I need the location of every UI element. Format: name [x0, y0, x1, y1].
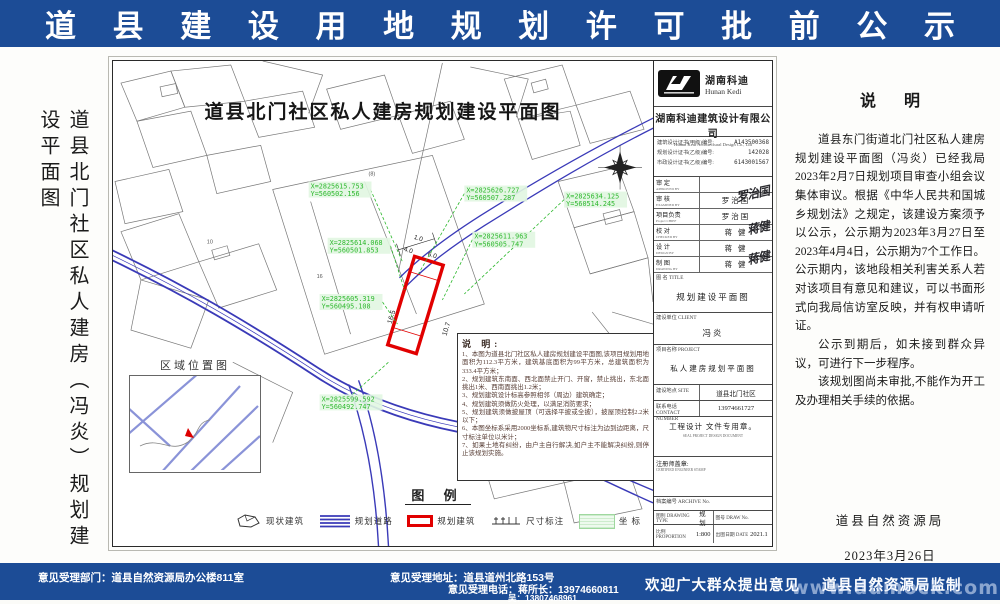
legend-item-planned-road: 规划道路 [319, 514, 393, 528]
svg-text:Y=560502.156: Y=560502.156 [311, 190, 360, 198]
scale-date-row: 比例 PROPORTION1:800 出图日期 DATE2021.1 [654, 525, 772, 543]
company-name-cell: 湖南科迪建筑设计有限公司 Hunan Kedi Architectural De… [654, 107, 772, 137]
statement-panel: 说 明 道县东门街道北门社区私人建房规划建设平面图（冯炎）已经我局2023年2月… [795, 87, 985, 564]
plan-note: 4、规划建筑须做防火处理，以满足消防要求； [462, 401, 649, 409]
contact-phone-cell: 联系电话 CONTACT NUMBER 13974661727 [654, 401, 772, 417]
svg-text:10.7: 10.7 [442, 321, 453, 336]
planned-building-plot [388, 256, 443, 353]
footer-banner: 意见受理部门：道县自然资源局办公楼811室 意见受理地址：道县道州北路153号 … [0, 563, 1000, 600]
legend-title: 图 例 [231, 485, 645, 504]
north-compass-icon [598, 145, 642, 189]
statement-paragraph: 公示到期后，如未接到群众异议，可进行下一步程序。 [795, 336, 985, 373]
statement-heading: 说 明 [795, 87, 985, 111]
plan-note: 2、规划建筑东南面、西北面禁止开门、开窗，禁止挑出，东北面挑出1米、西南面挑出1… [462, 376, 649, 393]
signing-date: 2023年3月26日 [795, 545, 985, 564]
svg-text:4.0: 4.0 [403, 246, 414, 255]
signing-organization: 道县自然资源局 [795, 510, 985, 529]
road-lines [113, 115, 653, 546]
plan-note: 1、本图为道县北门社区私人建房规划建设平面图,该项目规划用地面积为112.3平方… [462, 351, 649, 376]
legend-item-coordinate: 坐 标 [579, 514, 641, 529]
plan-notes-title: 说 明: [462, 337, 649, 350]
brand-name-cn: 湖南科迪 [705, 72, 749, 87]
svg-text:(8): (8) [369, 171, 376, 177]
inset-map-svg [130, 376, 260, 470]
certificate-numbers: 建筑设计证书(甲级)编号:A143500368 规划设计证书(乙级)编号:142… [654, 137, 772, 177]
svg-text:Y=560501.853: Y=560501.853 [330, 246, 379, 254]
inset-site-marker [185, 428, 194, 438]
kedi-logo-icon [658, 70, 700, 97]
footer-welcome: 欢迎广大群众提出意见 [645, 574, 800, 595]
plan-note: 6、本图坐标系采用2000坐标系,建筑物尺寸标注为边到边距离，尺寸标注单位以米计… [462, 425, 649, 442]
drawing-type-row: 图别 DRAWING TYPE规划 图号 DRAW No. [654, 511, 772, 525]
legend: 图 例 现状建筑 规划道路 [231, 485, 645, 541]
header-banner: 道 县 建 设 用 地 规 划 许 可 批 前 公 示 [0, 0, 1000, 47]
plan-note: 5、规划建筑须做披屋顶（可选择平披或全披），披屋顶控制2.2米以下； [462, 409, 649, 426]
svg-text:Y=560514.245: Y=560514.245 [566, 200, 615, 208]
drawing-sheet: 16.5 10.7 4.0 6.0 1.0 (8) 10 16 44 [112, 60, 773, 547]
company-logo-row: 湖南科迪 Hunan Kedi [654, 61, 772, 107]
notice-body: 道县北门社区私人建房（冯炎）规划建设平面图 [0, 47, 1000, 563]
title-block: 湖南科迪 Hunan Kedi 湖南科迪建筑设计有限公司 Hunan Kedi … [654, 61, 772, 546]
planned-building-swatch-icon [407, 515, 433, 527]
legend-item-dimension: 尺寸标注 [490, 514, 564, 528]
plan-notes-box: 说 明: 1、本图为道县北门社区私人建房规划建设平面图,该项目规划用地面积为11… [457, 333, 654, 481]
dimension-swatch-icon [490, 514, 522, 528]
plan-note: 7、如果土地有纠纷，由户主自行解决,如户主不能解决纠纷,则停止该规划实施。 [462, 442, 649, 459]
vertical-side-title: 道县北门社区私人建房（冯炎）规划建设平面图 [34, 109, 92, 563]
statement-paragraph: 该规划图尚未审批,不能作为开工及办理相关手续的依据。 [795, 373, 985, 410]
svg-text:16: 16 [317, 274, 323, 280]
watermark: www.dumock.com [791, 577, 999, 599]
svg-text:10: 10 [207, 240, 213, 246]
map-title: 道县北门社区私人建房规划建设平面图 [113, 97, 653, 124]
planned-road-swatch-icon [319, 514, 351, 528]
location-inset: 区域位置图 [129, 357, 261, 473]
footer-phone-2: 吴：13807468961 [508, 592, 577, 604]
legend-item-planned-building: 规划建筑 [407, 515, 475, 527]
footer-dept: 意见受理部门：道县自然资源局办公楼811室 [38, 570, 244, 585]
svg-text:Y=560505.747: Y=560505.747 [474, 240, 523, 248]
inset-map [129, 375, 261, 473]
drawing-title-cell: 图 名 TITLE 规划建设平面图 [654, 273, 772, 313]
brand-name-en: Hunan Kedi [705, 87, 749, 96]
statement-paragraph: 道县东门街道北门社区私人建房规划建设平面图（冯炎）已经我局2023年2月7日规划… [795, 131, 985, 336]
svg-text:Y=560507.287: Y=560507.287 [466, 194, 515, 202]
svg-text:1.0: 1.0 [413, 234, 424, 243]
existing-building-swatch-icon [235, 513, 262, 529]
site-cell: 建设地点 SITE 道县北门社区 [654, 385, 772, 401]
design-seal-cell: 工程设计 文件专用章。 SEAL PROJECT DESIGN DOCUMENT [654, 417, 772, 457]
project-name-cell: 项目名称 PROJECT 私人建房规划平面图 [654, 345, 772, 385]
svg-text:Y=560492.747: Y=560492.747 [322, 403, 371, 411]
inset-label: 区域位置图 [129, 357, 261, 373]
archive-number-cell: 档案编号 ARCHIVE No. [654, 497, 772, 511]
staff-table: 审 定APPROVED BY 审 核EXAMINED BY罗治国 项目负责Pro… [654, 177, 772, 273]
legend-item-existing-building: 现状建筑 [235, 513, 304, 529]
engineer-stamp-cell: 注册师盖章: CERTIFIED ENGINEER STAMP [654, 457, 772, 497]
plan-note: 3、规划建筑设计标高参照相邻（周边）建筑确定； [462, 392, 649, 400]
svg-text:Y=560495.108: Y=560495.108 [322, 303, 371, 311]
page-title: 道 县 建 设 用 地 规 划 许 可 批 前 公 示 [31, 1, 969, 46]
site-plan-map: 16.5 10.7 4.0 6.0 1.0 (8) 10 16 44 [113, 61, 654, 546]
coordinate-swatch-icon [579, 514, 615, 529]
client-cell: 建设单位 CLIENT 冯炎 [654, 313, 772, 345]
